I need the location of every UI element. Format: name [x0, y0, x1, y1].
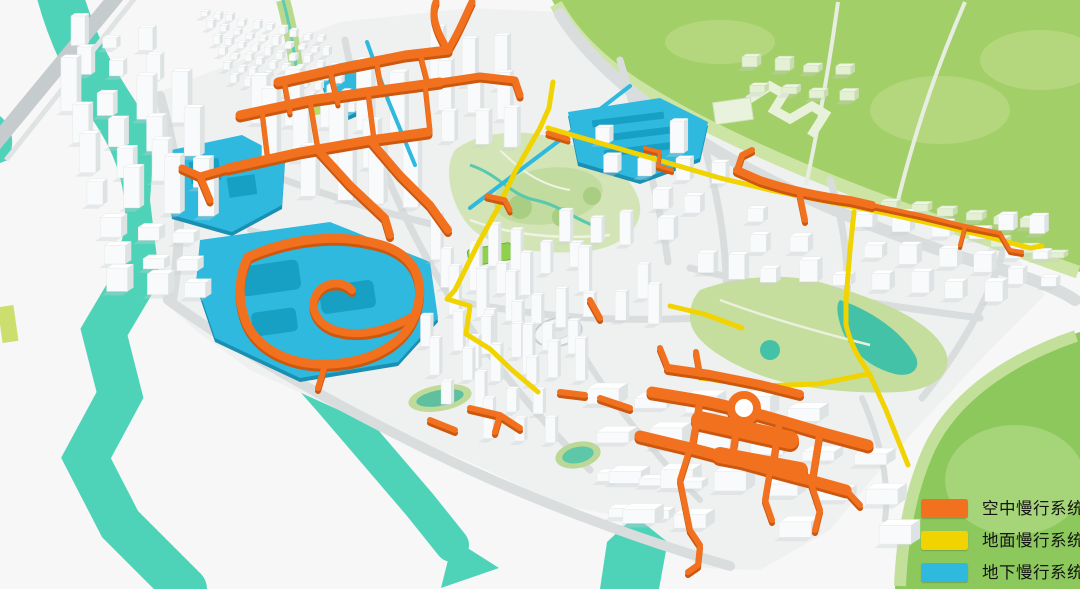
legend-label-ground: 地面慢行系统 [982, 531, 1080, 550]
legend-swatch-ground [921, 531, 968, 550]
legend-item-ground: 地面慢行系统 [921, 531, 1080, 550]
legend-swatch-underground [921, 563, 968, 582]
masterplan-canvas: 空中慢行系统 地面慢行系统 地下慢行系统 [0, 0, 1080, 589]
legend-label-underground: 地下慢行系统 [982, 563, 1080, 582]
legend-label-aerial: 空中慢行系统 [982, 499, 1080, 518]
legend-swatch-aerial [921, 499, 968, 518]
legend: 空中慢行系统 地面慢行系统 地下慢行系统 [921, 499, 1080, 582]
aerial-ring-node [731, 395, 757, 421]
hill-courtyard-building [713, 97, 754, 124]
legend-item-underground: 地下慢行系统 [921, 563, 1080, 582]
legend-item-aerial: 空中慢行系统 [921, 499, 1080, 518]
